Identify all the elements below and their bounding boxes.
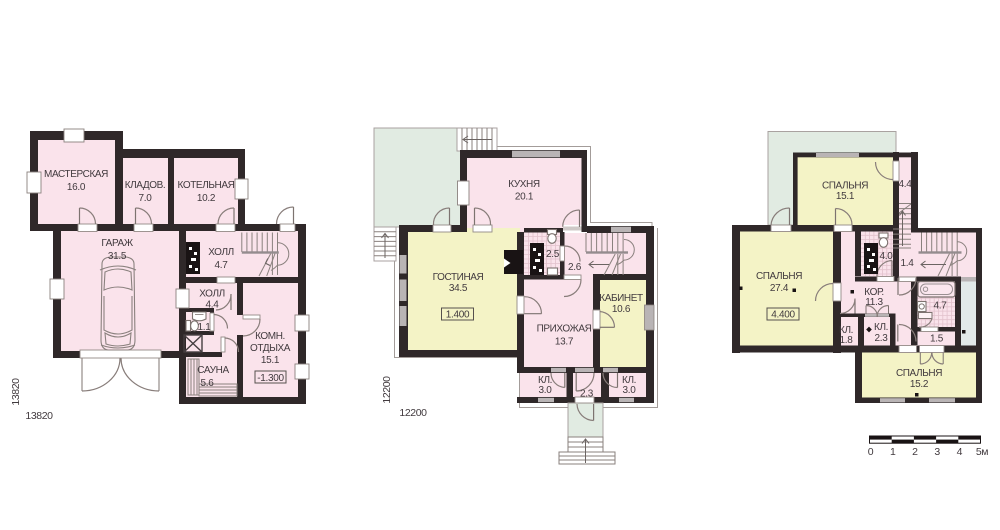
svg-text:4: 4 <box>957 446 963 458</box>
svg-text:7.0: 7.0 <box>138 193 152 204</box>
svg-text:КОТЕЛЬНАЯ: КОТЕЛЬНАЯ <box>178 180 235 191</box>
svg-text:КЛАДОВ.: КЛАДОВ. <box>125 180 166 191</box>
svg-text:КУХНЯ: КУХНЯ <box>508 179 540 190</box>
svg-text:4.400: 4.400 <box>771 310 795 321</box>
svg-text:1: 1 <box>890 446 896 458</box>
svg-text:4.0: 4.0 <box>879 251 893 262</box>
svg-text:3.0: 3.0 <box>622 385 636 396</box>
svg-text:20.1: 20.1 <box>515 192 534 203</box>
svg-text:11.3: 11.3 <box>865 297 883 308</box>
svg-text:2.6: 2.6 <box>568 262 582 273</box>
svg-text:13820: 13820 <box>10 378 22 406</box>
svg-text:12200: 12200 <box>381 376 393 404</box>
svg-text:10.6: 10.6 <box>612 304 631 315</box>
svg-text:12200: 12200 <box>399 407 427 419</box>
svg-text:4.4: 4.4 <box>205 300 219 311</box>
svg-text:2.3: 2.3 <box>580 389 594 400</box>
svg-text:ПРИХОЖАЯ: ПРИХОЖАЯ <box>537 324 592 335</box>
svg-text:27.4: 27.4 <box>770 283 789 294</box>
svg-text:16.0: 16.0 <box>67 182 86 193</box>
svg-text:СПАЛЬНЯ: СПАЛЬНЯ <box>896 368 942 379</box>
svg-text:СПАЛЬНЯ: СПАЛЬНЯ <box>756 271 802 282</box>
svg-text:1.8: 1.8 <box>839 335 853 346</box>
svg-text:1.400: 1.400 <box>446 310 470 321</box>
svg-text:МАСТЕРСКАЯ: МАСТЕРСКАЯ <box>44 169 108 180</box>
svg-text:15.1: 15.1 <box>261 355 280 366</box>
svg-text:ГОСТИНАЯ: ГОСТИНАЯ <box>433 272 484 283</box>
svg-text:3.0: 3.0 <box>538 385 552 396</box>
svg-text:4.4: 4.4 <box>898 179 912 190</box>
svg-text:1.1: 1.1 <box>197 322 211 333</box>
svg-text:34.5: 34.5 <box>449 283 468 294</box>
svg-text:13.7: 13.7 <box>555 337 574 348</box>
svg-text:0: 0 <box>868 446 874 458</box>
svg-text:15.2: 15.2 <box>910 379 929 390</box>
svg-text:10.2: 10.2 <box>197 193 216 204</box>
svg-text:1.5: 1.5 <box>930 334 944 345</box>
svg-text:СПАЛЬНЯ: СПАЛЬНЯ <box>822 181 868 192</box>
svg-text:13820: 13820 <box>25 410 53 422</box>
svg-text:2.5: 2.5 <box>546 249 560 260</box>
svg-text:2.3: 2.3 <box>874 333 888 344</box>
svg-text:5м: 5м <box>976 446 988 458</box>
svg-text:КЛ.: КЛ. <box>874 322 888 333</box>
svg-text:САУНА: САУНА <box>197 365 229 376</box>
svg-text:ГАРАЖ: ГАРАЖ <box>101 238 133 249</box>
svg-text:15.1: 15.1 <box>836 191 855 202</box>
svg-text:31.5: 31.5 <box>108 251 127 262</box>
svg-text:2: 2 <box>912 446 918 458</box>
svg-text:4.7: 4.7 <box>933 301 947 312</box>
svg-text:КАБИНЕТ: КАБИНЕТ <box>599 293 643 304</box>
svg-text:ХОЛЛ: ХОЛЛ <box>208 247 234 258</box>
svg-text:КОМН.: КОМН. <box>255 331 285 342</box>
svg-text:3: 3 <box>934 446 940 458</box>
svg-text:1.4: 1.4 <box>900 258 914 269</box>
svg-text:ОТДЫХА: ОТДЫХА <box>250 343 291 354</box>
svg-text:ХОЛЛ: ХОЛЛ <box>199 289 225 300</box>
svg-text:5.6: 5.6 <box>200 378 214 389</box>
svg-text:-1.300: -1.300 <box>257 373 284 384</box>
svg-text:4.7: 4.7 <box>214 260 228 271</box>
